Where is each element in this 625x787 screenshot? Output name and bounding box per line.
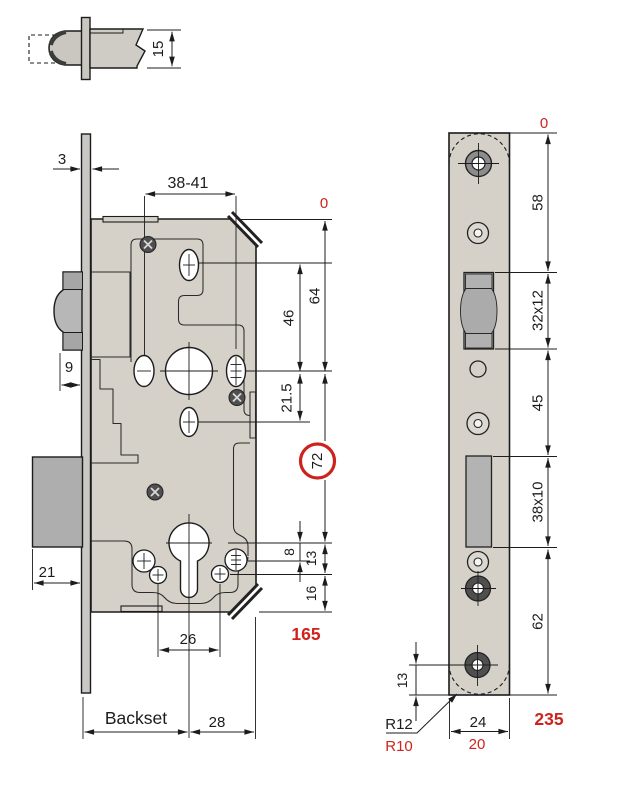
mortise-lock-drawing: 15 [0,0,625,787]
dim-datum: 0 [320,195,328,212]
dim-fp-seg-mid: 45 [530,395,547,412]
dim-fp-width-alt: 20 [469,736,486,753]
pin-hole-center [474,420,482,428]
dim-faceplate-thickness: 3 [58,151,66,168]
lock-case-view: 3 38-41 0 64 46 21.5 72 8 13 16 165 9 21 [33,134,335,739]
dim-latch-height: 15 [150,41,167,58]
dim-fp-width: 24 [470,714,487,731]
faceplate-section-bar [82,18,91,80]
latch-detail-view: 15 [29,18,181,80]
pin-hole-center [474,229,482,237]
dim-deadbolt-projection: 21 [39,564,56,581]
dim-fp-corner-radius: R12 [385,716,413,733]
latch-bolt-bottom-band [63,333,83,351]
dim-fp-bolt-cutout: 38x10 [530,482,547,523]
latch-body-break [90,29,145,68]
dim-bottom-margin: 16 [303,586,319,602]
dim-spindle-to-cylinder: 72 [309,453,326,470]
dim-fp-latch-cutout: 32x12 [530,290,547,331]
dim-spindle-depth: 64 [307,288,324,305]
dim-lower-screw-span: 26 [180,631,197,648]
pin-hole-center [474,558,482,566]
technical-drawing-page: 15 [0,0,625,787]
deadbolt-cutout [466,456,492,547]
small-hole [470,361,486,377]
dim-fp-length: 235 [534,709,563,729]
bottom-mount-tab [121,606,162,612]
latch-cutout [461,273,498,350]
deadbolt [33,457,83,547]
dim-fp-screw-to-end: 13 [394,673,410,689]
dim-cyl-offset-b: 13 [303,551,319,567]
faceplate-view: 0 58 32x12 45 38x10 62 235 13 24 20 R12 … [385,115,564,755]
dim-cyl-offset-a: 8 [281,548,297,556]
dim-fp-seg-bottom: 62 [530,613,547,630]
dim-backset-label: Backset [105,708,167,728]
dim-latch-projection: 9 [65,359,73,376]
dim-case-depth-behind: 28 [209,714,226,731]
dim-top-screw-span: 38-41 [168,175,209,192]
dim-case-height: 165 [291,624,320,644]
dim-fp-corner-radius-alt: R10 [385,738,413,755]
dim-below-spindle: 21.5 [279,383,296,412]
dim-fp-datum: 0 [540,115,548,132]
latch-bolt-top-band [63,272,83,290]
top-mount-tab [103,217,158,223]
faceplate-edge-strip [82,134,91,693]
dim-top-hole-depth: 46 [281,310,298,327]
dim-fp-seg-top: 58 [530,194,547,211]
